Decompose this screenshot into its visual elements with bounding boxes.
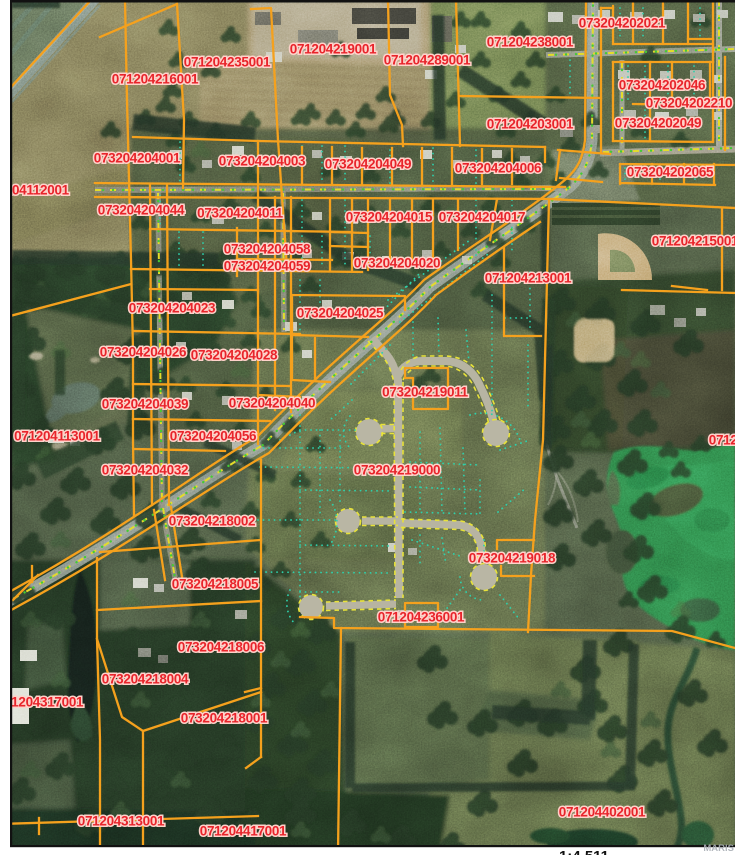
svg-text:071204313001: 071204313001 [78, 814, 165, 829]
svg-text:073204204015: 073204204015 [346, 210, 433, 225]
svg-text:071204417001: 071204417001 [200, 824, 287, 839]
svg-text:073204204006: 073204204006 [455, 161, 542, 176]
svg-text:073204204003: 073204204003 [219, 154, 306, 169]
svg-text:071204113001: 071204113001 [14, 429, 101, 444]
svg-text:073204202046: 073204202046 [619, 78, 706, 93]
svg-text:071204215001: 071204215001 [652, 234, 735, 249]
svg-text:073204204059: 073204204059 [224, 259, 311, 274]
svg-text:071204289001: 071204289001 [384, 53, 471, 68]
svg-text:073204219000: 073204219000 [354, 463, 441, 478]
svg-text:073204204039: 073204204039 [102, 397, 189, 412]
svg-text:071204219001: 071204219001 [290, 42, 377, 57]
svg-text:071204235001: 071204235001 [184, 55, 271, 70]
svg-text:073204204032: 073204204032 [102, 463, 189, 478]
svg-text:073204204001: 073204204001 [94, 151, 181, 166]
svg-text:071204236001: 071204236001 [378, 610, 465, 625]
svg-text:073204204049: 073204204049 [325, 157, 412, 172]
svg-text:1:4,511: 1:4,511 [559, 848, 609, 855]
svg-text:073204204056: 073204204056 [170, 429, 257, 444]
svg-text:073204204058: 073204204058 [224, 242, 311, 257]
svg-text:073204202065: 073204202065 [627, 165, 714, 180]
svg-text:073204219011: 073204219011 [382, 385, 469, 400]
svg-text:073204202210: 073204202210 [646, 96, 733, 111]
svg-text:073204202049: 073204202049 [615, 116, 702, 131]
svg-text:073204218006: 073204218006 [178, 640, 265, 655]
svg-text:073204204028: 073204204028 [191, 348, 278, 363]
svg-text:073204202021: 073204202021 [579, 16, 666, 31]
svg-text:073204204026: 073204204026 [100, 345, 187, 360]
svg-text:073204204044: 073204204044 [98, 203, 185, 218]
svg-text:071204213001: 071204213001 [485, 271, 572, 286]
svg-text:073204218005: 073204218005 [172, 577, 259, 592]
svg-text:073204204040: 073204204040 [229, 396, 316, 411]
svg-text:073204204017: 073204204017 [439, 210, 526, 225]
svg-text:071204203001: 071204203001 [487, 117, 574, 132]
svg-text:073204204025: 073204204025 [297, 306, 384, 321]
svg-text:073204218002: 073204218002 [169, 514, 256, 529]
svg-text:071204216001: 071204216001 [112, 72, 199, 87]
svg-text:071204317001: 071204317001 [0, 695, 84, 710]
svg-text:071204402001: 071204402001 [559, 805, 646, 820]
svg-text:MARIS: MARIS [703, 843, 734, 854]
svg-text:071204415001: 071204415001 [709, 433, 735, 448]
svg-text:073204218004: 073204218004 [102, 672, 189, 687]
svg-text:071204238001: 071204238001 [487, 35, 574, 50]
svg-text:073204204020: 073204204020 [354, 256, 441, 271]
svg-text:073204204011: 073204204011 [197, 206, 284, 221]
svg-text:073204204023: 073204204023 [129, 301, 216, 316]
svg-text:073204218001: 073204218001 [181, 711, 268, 726]
svg-text:073204219018: 073204219018 [469, 551, 556, 566]
